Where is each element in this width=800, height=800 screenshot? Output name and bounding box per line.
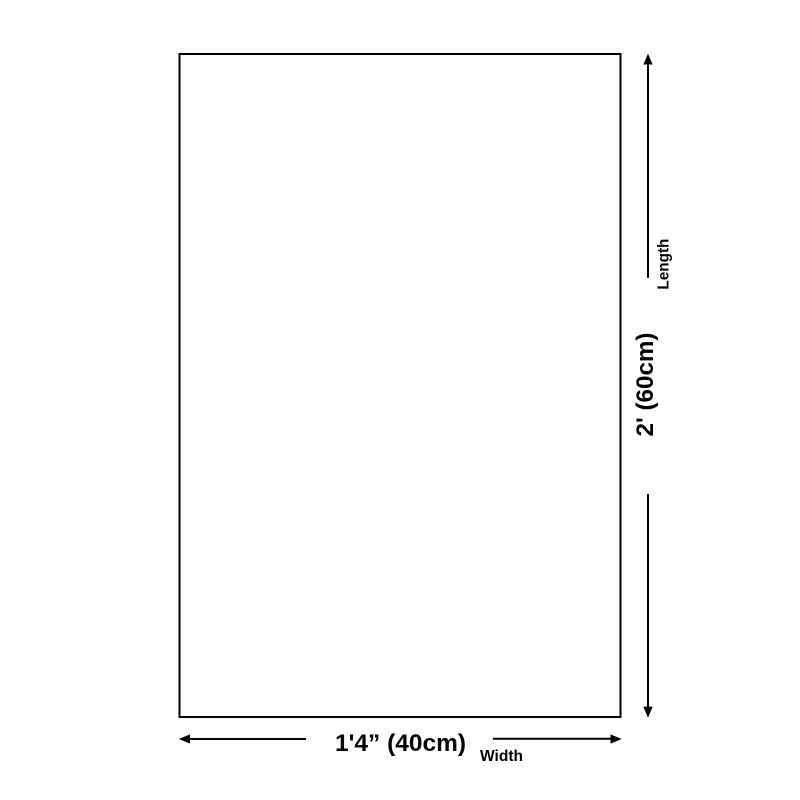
svg-text:Length: Length: [656, 239, 673, 290]
svg-text:2' (60cm): 2' (60cm): [632, 333, 659, 437]
svg-text:1'4” (40cm): 1'4” (40cm): [335, 730, 466, 757]
svg-text:Width: Width: [480, 748, 523, 765]
